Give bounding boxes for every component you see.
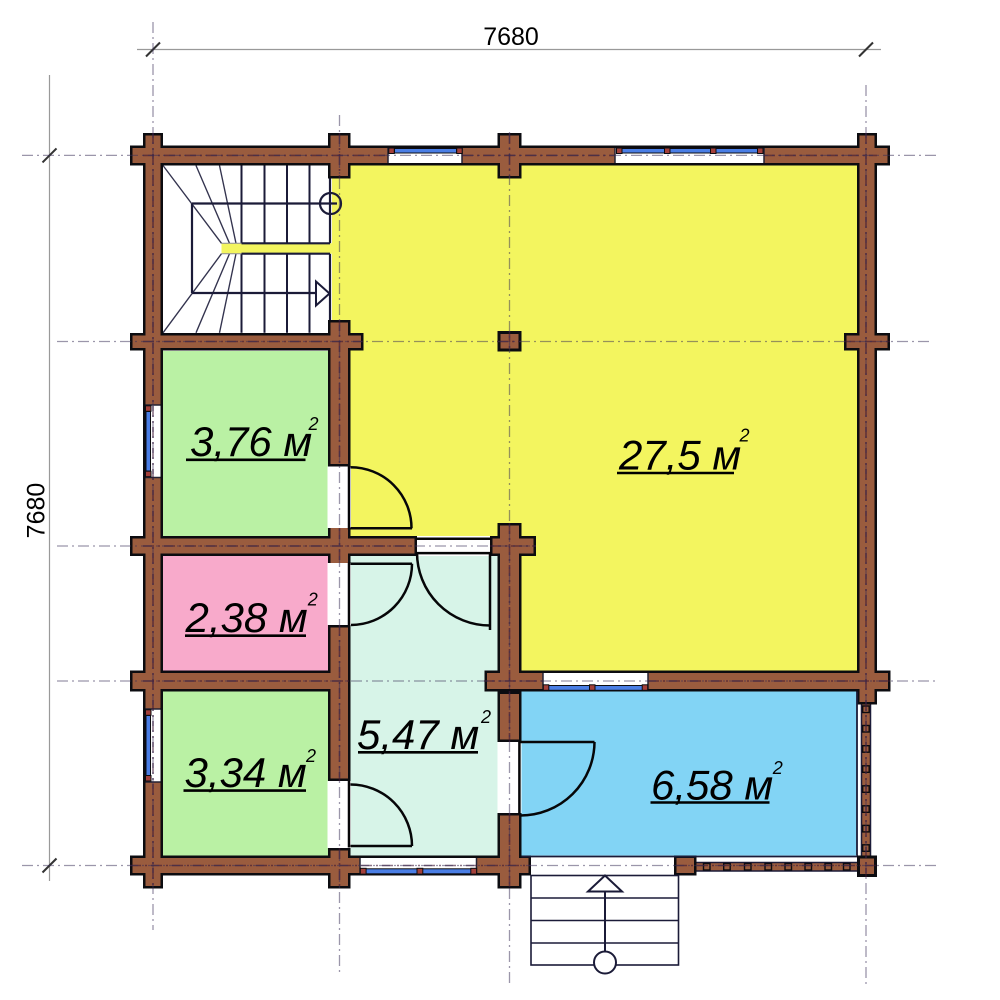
svg-text:3,76 м: 3,76 м: [190, 418, 312, 465]
svg-text:5,47 м: 5,47 м: [357, 711, 479, 758]
svg-text:2,38 м: 2,38 м: [185, 594, 308, 641]
svg-text:2: 2: [307, 590, 318, 610]
svg-text:2: 2: [305, 746, 316, 766]
svg-text:7680: 7680: [483, 23, 539, 51]
svg-text:2: 2: [739, 426, 750, 446]
svg-text:2: 2: [308, 414, 319, 434]
svg-text:2: 2: [772, 758, 783, 778]
svg-text:2: 2: [480, 707, 491, 727]
svg-text:27,5 м: 27,5 м: [618, 431, 741, 478]
svg-text:3,34 м: 3,34 м: [185, 749, 307, 796]
svg-text:7680: 7680: [23, 483, 51, 539]
